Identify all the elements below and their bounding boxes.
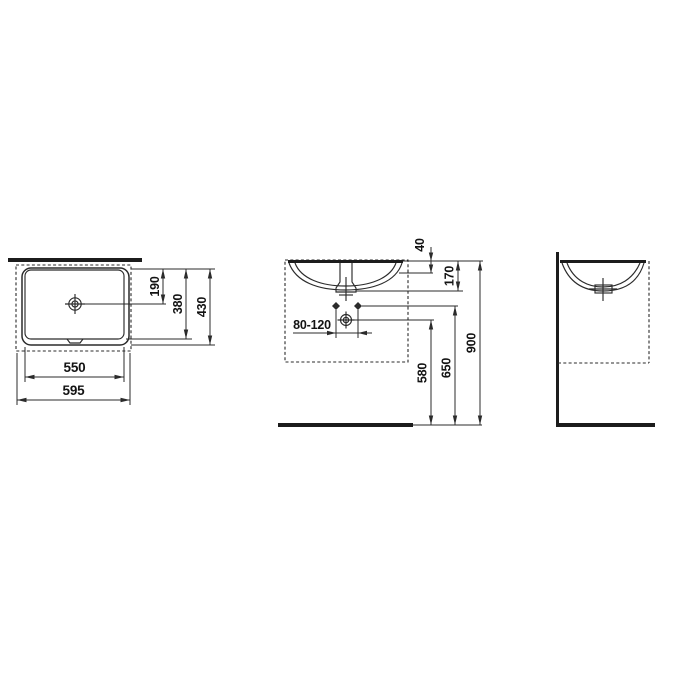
basin-rim-bar bbox=[288, 260, 403, 263]
basin-side-profile bbox=[560, 260, 646, 301]
dim-label-580: 580 bbox=[416, 363, 430, 384]
basin-front-profile bbox=[288, 260, 403, 301]
dim-label-80-120: 80-120 bbox=[293, 318, 331, 332]
dim-80-120-arrow-right bbox=[358, 331, 367, 335]
top-view: 190 380 430 550 595 bbox=[8, 258, 215, 405]
dim-label-380: 380 bbox=[171, 294, 185, 315]
dim-basin-width: 550 bbox=[25, 360, 124, 377]
dim-label-900: 900 bbox=[465, 333, 479, 354]
dim-40-arrow-lower bbox=[429, 265, 433, 274]
drawing-canvas: 190 380 430 550 595 bbox=[0, 0, 700, 700]
dim-overall-width: 595 bbox=[17, 383, 130, 400]
dim-label-595: 595 bbox=[63, 383, 86, 398]
fixing-hole-left-icon bbox=[332, 302, 340, 310]
dim-basin-depth: 380 bbox=[171, 269, 186, 339]
dim-40-arrow-upper bbox=[429, 253, 433, 262]
dim-label-430: 430 bbox=[195, 297, 209, 318]
installation-dashed-outline bbox=[285, 260, 408, 362]
dim-rim-level: 900 bbox=[465, 261, 481, 425]
dim-label-170: 170 bbox=[443, 266, 457, 287]
dim-bowl-depth: 170 bbox=[443, 261, 459, 291]
dim-overall-depth: 430 bbox=[195, 269, 210, 345]
side-view bbox=[556, 252, 655, 427]
dim-label-650: 650 bbox=[440, 358, 454, 379]
basin-rim-bar-side bbox=[560, 260, 646, 263]
dim-fixing-span: 80-120 bbox=[293, 318, 372, 335]
front-view: 40 170 80-120 580 650 900 bbox=[278, 238, 483, 427]
dim-label-190: 190 bbox=[148, 276, 162, 297]
dim-label-40: 40 bbox=[413, 238, 427, 252]
dim-drain-offset: 190 bbox=[148, 269, 163, 304]
washbasin-dimension-drawing: 190 380 430 550 595 bbox=[0, 0, 700, 700]
dim-outlet-height: 580 bbox=[416, 320, 432, 425]
floor-bar bbox=[278, 423, 413, 427]
dim-label-550: 550 bbox=[64, 360, 86, 375]
dim-fixing-height: 650 bbox=[440, 306, 456, 425]
outlet-crosshair-icon bbox=[338, 312, 355, 329]
overflow-notch bbox=[67, 339, 83, 343]
floor-bar-side bbox=[556, 423, 655, 427]
fixing-hole-right-icon bbox=[354, 302, 362, 310]
drain-icon bbox=[65, 294, 85, 314]
wall-section-bar bbox=[8, 258, 142, 262]
cutout-dashed-outline bbox=[16, 265, 131, 351]
dim-rim-height: 40 bbox=[413, 238, 433, 273]
